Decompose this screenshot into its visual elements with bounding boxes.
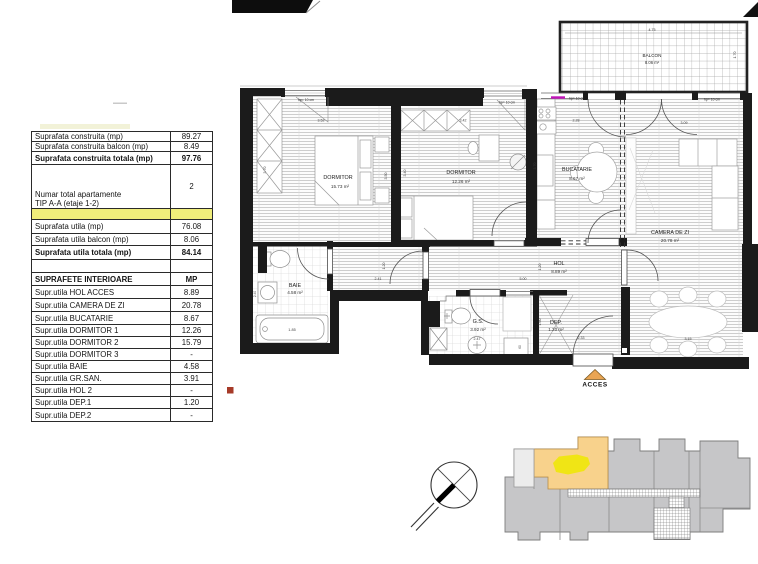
svg-text:ACCES: ACCES <box>582 382 608 389</box>
svg-text:1.60: 1.60 <box>538 319 542 326</box>
svg-text:3.92 m²: 3.92 m² <box>470 327 486 332</box>
svg-text:4.58 m²: 4.58 m² <box>287 290 303 295</box>
svg-text:3.52: 3.52 <box>318 119 325 123</box>
svg-text:BALCON: BALCON <box>643 53 662 58</box>
svg-text:3.09: 3.09 <box>681 121 688 125</box>
svg-text:2.47: 2.47 <box>474 337 481 341</box>
svg-text:8.89 m²: 8.89 m² <box>551 269 567 274</box>
svg-text:8.67 m²: 8.67 m² <box>569 176 585 181</box>
svg-text:2.41: 2.41 <box>375 277 382 281</box>
svg-text:1.20: 1.20 <box>382 263 386 270</box>
svg-text:1.20: 1.20 <box>538 264 542 271</box>
svg-text:3.40: 3.40 <box>403 170 407 177</box>
svg-text:3.50: 3.50 <box>384 173 388 180</box>
svg-text:hp= 10 cm: hp= 10 cm <box>298 98 314 102</box>
svg-text:20.78 m²: 20.78 m² <box>661 238 680 243</box>
svg-text:2.28: 2.28 <box>573 119 580 123</box>
svg-text:2.40: 2.40 <box>253 291 257 297</box>
svg-text:15.73 m²: 15.73 m² <box>331 184 350 189</box>
svg-text:DEP.: DEP. <box>550 320 562 326</box>
svg-text:60: 60 <box>518 345 522 349</box>
svg-text:1.85: 1.85 <box>288 328 295 332</box>
svg-text:1.20 m²: 1.20 m² <box>548 327 564 332</box>
svg-text:8.06 m²: 8.06 m² <box>645 60 660 65</box>
svg-text:CAMERA DE ZI: CAMERA DE ZI <box>651 230 689 236</box>
svg-text:4.75: 4.75 <box>649 28 656 32</box>
svg-text:3.70: 3.70 <box>533 163 537 170</box>
svg-text:2.33: 2.33 <box>578 336 585 340</box>
svg-text:HOL: HOL <box>553 261 564 267</box>
svg-text:BAIE: BAIE <box>289 283 302 289</box>
svg-text:1.70: 1.70 <box>733 52 737 59</box>
svg-text:DORMITOR: DORMITOR <box>323 175 352 181</box>
svg-text:hp= 10 cm: hp= 10 cm <box>569 97 585 101</box>
svg-text:5.00: 5.00 <box>520 277 527 281</box>
svg-text:12.26 m²: 12.26 m² <box>452 179 471 184</box>
svg-text:3.42: 3.42 <box>460 119 467 123</box>
svg-text:G.S.: G.S. <box>473 319 484 325</box>
svg-text:3.70: 3.70 <box>263 167 267 174</box>
svg-text:hp= 10 cm: hp= 10 cm <box>704 98 720 102</box>
svg-text:BUCATARIE: BUCATARIE <box>562 167 592 173</box>
svg-text:3.15: 3.15 <box>685 337 692 341</box>
svg-text:hp= 10 cm: hp= 10 cm <box>499 101 515 105</box>
svg-text:DORMITOR: DORMITOR <box>446 170 475 176</box>
